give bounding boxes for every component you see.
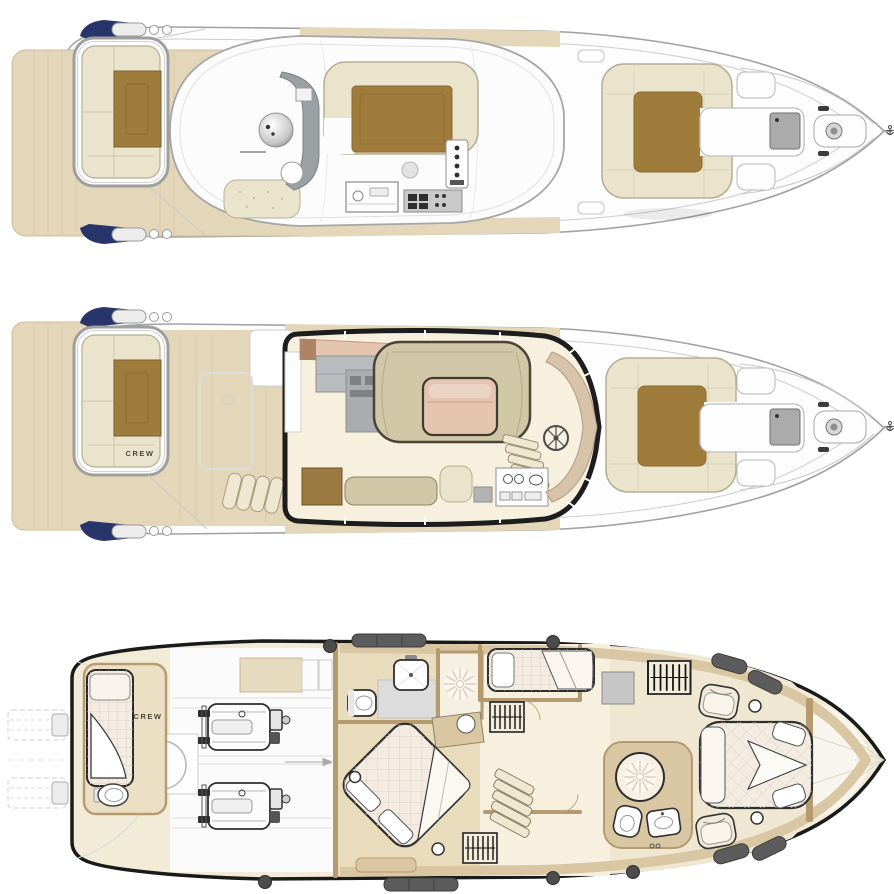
crew-cabin: CREW xyxy=(84,664,166,814)
guest-berth xyxy=(488,649,594,691)
deck-hatch xyxy=(578,202,604,214)
armchair xyxy=(695,812,738,850)
sink-icon xyxy=(646,808,681,838)
stool xyxy=(457,715,475,733)
crew-cabin-label: CREW xyxy=(134,712,163,721)
flybridge-deck-plan xyxy=(12,20,894,244)
porthole-icon xyxy=(751,812,763,824)
vip-bed xyxy=(700,720,812,809)
master-wardrobe xyxy=(463,833,497,863)
guest-wardrobe xyxy=(490,702,524,732)
cleat-icon xyxy=(547,872,560,885)
yacht-three-deck-floorplan: CREW xyxy=(0,0,894,894)
transom-ghost-gear xyxy=(8,710,68,808)
porthole-icon xyxy=(432,843,444,855)
bench xyxy=(356,858,416,872)
companion-seat xyxy=(440,466,472,502)
lower-deck-plan: CREW xyxy=(8,634,884,891)
deck-hatch xyxy=(578,50,604,62)
crew-access-label: CREW xyxy=(126,449,155,458)
aft-cockpit-sofa xyxy=(74,38,168,186)
crew-bed xyxy=(87,670,133,786)
cleat-icon xyxy=(627,866,640,879)
armchair xyxy=(698,683,741,721)
toilet-icon xyxy=(348,690,376,716)
drink-table xyxy=(402,162,418,178)
main-deck-plan: CREW xyxy=(12,307,894,541)
side-table xyxy=(474,487,492,502)
pillow xyxy=(492,653,514,687)
master-shower xyxy=(438,652,482,718)
nightstand xyxy=(602,672,634,704)
tank xyxy=(240,658,302,692)
engine-room-bulkhead xyxy=(333,642,338,878)
flybridge-grill xyxy=(404,190,462,212)
galley-unit xyxy=(496,468,548,506)
sideboard-cabinet xyxy=(302,468,342,505)
vanity-desk xyxy=(432,712,484,748)
sink-icon xyxy=(394,655,428,690)
pillow xyxy=(90,674,130,700)
vip-wardrobe xyxy=(648,661,691,694)
aft-bench xyxy=(345,477,437,505)
cleat-icon xyxy=(259,876,272,889)
aft-bulkhead xyxy=(285,352,301,432)
dinette-sofa xyxy=(374,342,530,442)
starboard-engine xyxy=(198,783,290,829)
porthole-icon xyxy=(350,772,361,783)
port-engine xyxy=(198,704,290,750)
hull-shadow xyxy=(623,208,713,220)
flybridge-wetbar xyxy=(346,182,398,212)
electronics-console xyxy=(446,140,468,188)
cleat-icon xyxy=(324,640,337,653)
radar-dome-icon xyxy=(259,113,293,147)
day-head xyxy=(604,742,692,848)
flybridge-platform xyxy=(170,36,564,226)
porthole-icon xyxy=(749,700,761,712)
cleat-icon xyxy=(547,636,560,649)
deck-plans-svg: CREW xyxy=(0,0,894,894)
folded-blanket xyxy=(701,727,725,803)
saloon-deckhouse xyxy=(285,330,599,525)
helm-seat xyxy=(281,162,303,184)
